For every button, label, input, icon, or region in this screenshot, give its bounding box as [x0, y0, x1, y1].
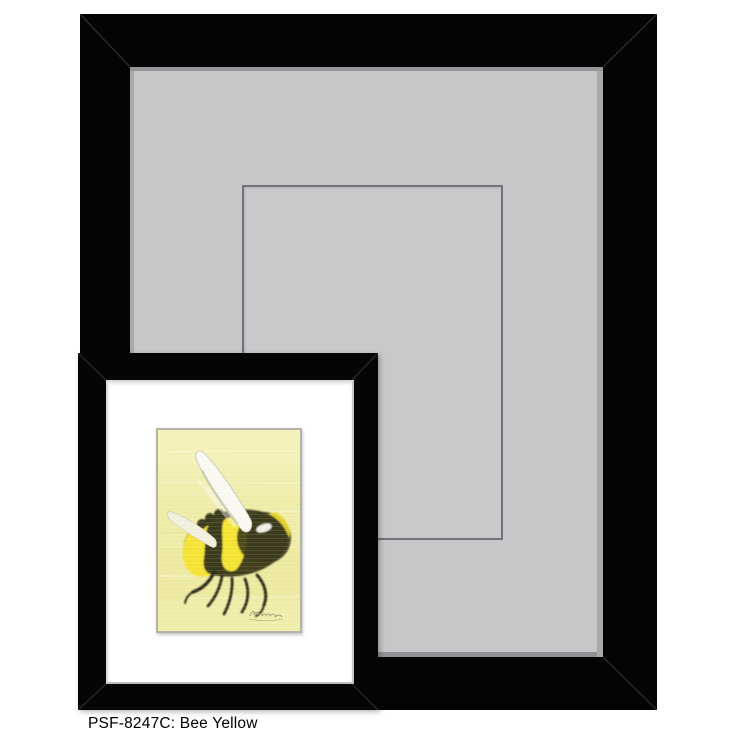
small-frame [78, 353, 378, 710]
small-frame-white-mat [106, 380, 354, 684]
bee-illustration [158, 430, 300, 631]
framed-print-mockup: PSF-8247C: Bee Yellow [0, 0, 738, 738]
caption: PSF-8247C: Bee Yellow [88, 715, 258, 733]
bee-painting [156, 428, 302, 633]
